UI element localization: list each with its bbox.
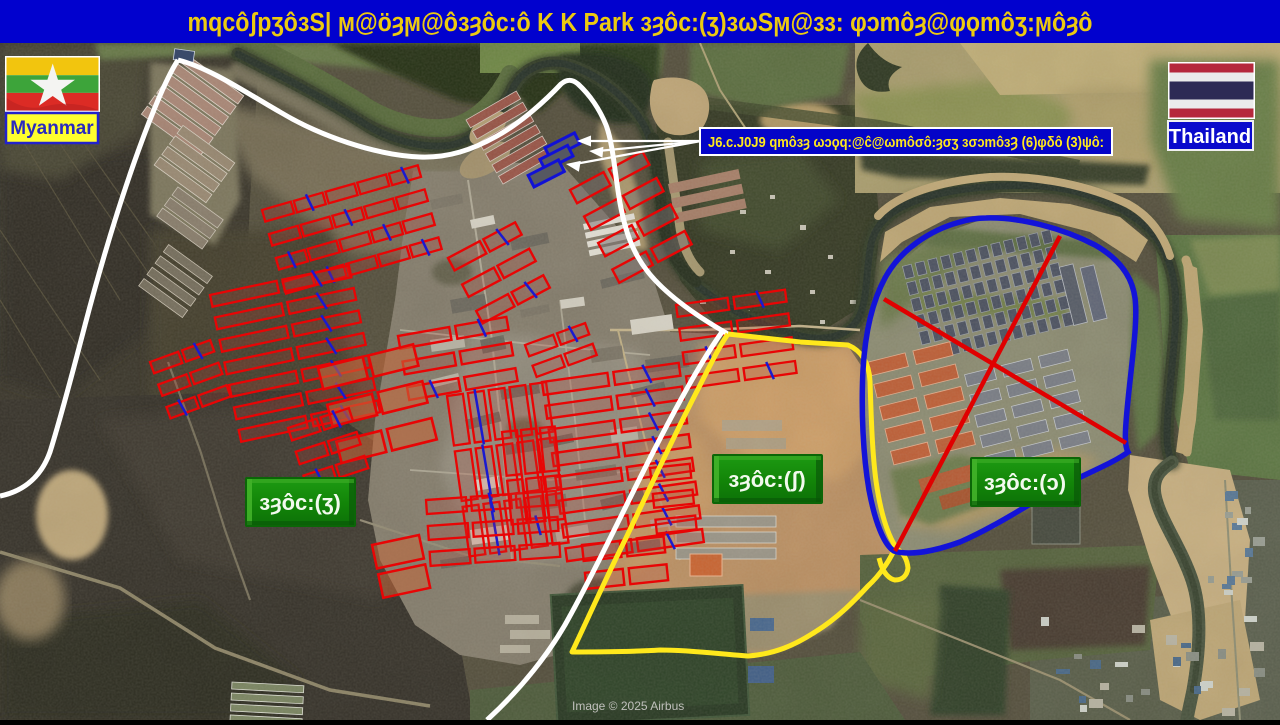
svg-text:J6.c.J0J9 qmôɜȝ ωɔϙq:@ĉ@ωmôσô:: J6.c.J0J9 qmôɜȝ ωɔϙq:@ĉ@ωmôσô:ȝσʒ зσɔmôз… <box>708 135 1104 151</box>
svg-text:зȝôc:(ɔ): зȝôc:(ɔ) <box>984 470 1066 495</box>
svg-text:Image © 2025 Airbus: Image © 2025 Airbus <box>572 699 684 713</box>
svg-text:зȝôc:(ʒ): зȝôc:(ʒ) <box>259 490 341 515</box>
svg-text:mqcôʃpʒôɜS| ϻ@öȝϻ@ôзȝôc:ô K K: mqcôʃpʒôɜS| ϻ@öȝϻ@ôзȝôc:ô K K Park зȝôc:… <box>188 9 1093 37</box>
svg-text:Thailand: Thailand <box>1169 126 1251 148</box>
svg-text:зȝôc:(ʃ): зȝôc:(ʃ) <box>728 467 805 492</box>
svg-text:Myanmar: Myanmar <box>10 118 94 139</box>
